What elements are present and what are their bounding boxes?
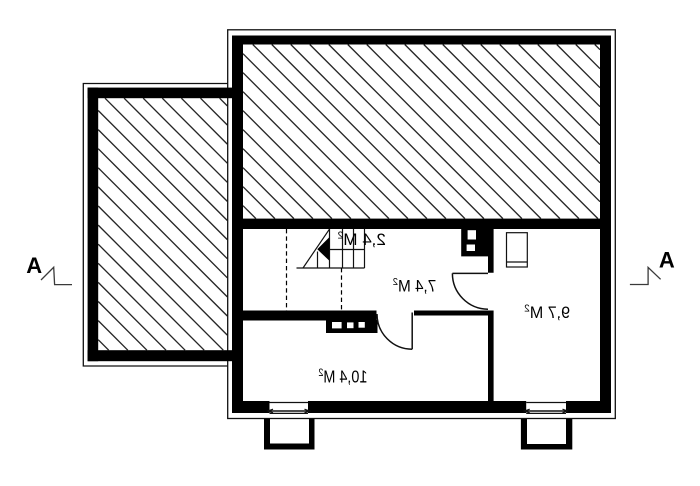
svg-text:A: A (659, 247, 675, 272)
svg-text:7,4 M2: 7,4 M2 (392, 276, 436, 295)
svg-text:9,7 M2: 9,7 M2 (524, 302, 570, 321)
svg-text:A: A (26, 253, 42, 278)
svg-text:10,4 M2: 10,4 M2 (318, 367, 367, 387)
svg-text:2,4 M2: 2,4 M2 (337, 230, 386, 250)
